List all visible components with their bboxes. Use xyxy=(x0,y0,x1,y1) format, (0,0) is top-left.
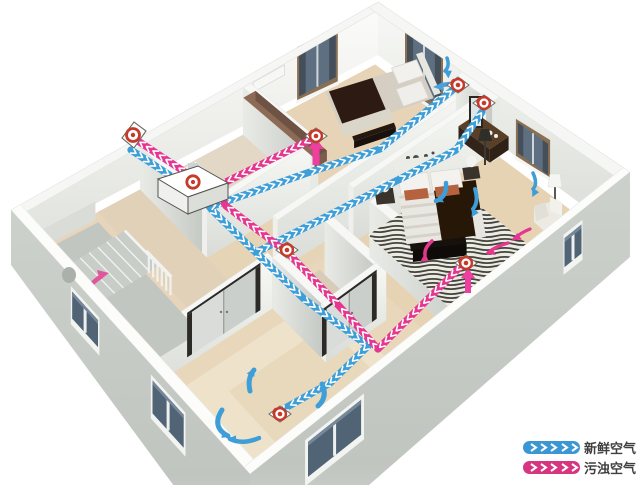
svg-text:污浊空气: 污浊空气 xyxy=(584,461,636,476)
svg-text:新鲜空气: 新鲜空气 xyxy=(584,441,636,456)
